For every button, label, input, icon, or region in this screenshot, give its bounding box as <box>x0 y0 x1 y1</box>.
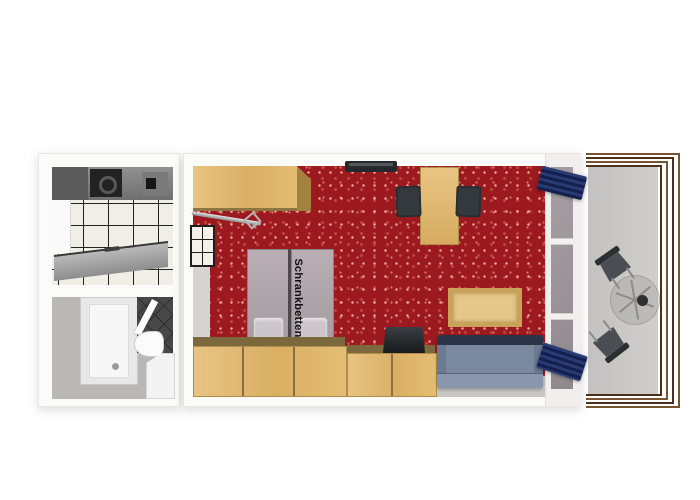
sofa-front <box>437 373 543 388</box>
floor-plan: Schrankbetten <box>0 0 700 500</box>
wardrobe <box>193 166 297 211</box>
bathroom <box>52 297 173 399</box>
sofa-arm-left <box>437 345 446 373</box>
table-hub-icon <box>637 295 648 306</box>
kitchen <box>52 167 173 285</box>
kitchen-counter-column <box>52 200 71 254</box>
drain-icon <box>112 363 119 370</box>
sofa <box>437 335 543 388</box>
sofa-back <box>437 335 543 345</box>
kitchen-bathroom-unit <box>38 153 180 407</box>
coffee-table <box>448 288 522 327</box>
shower-tray <box>89 304 129 378</box>
kitchen-sink-unit <box>142 172 168 196</box>
balcony-table <box>610 275 660 325</box>
balcony <box>586 153 680 408</box>
sink-basin-icon <box>146 178 156 189</box>
kitchen-upper-cabinets <box>52 167 173 200</box>
dining-table <box>420 167 459 245</box>
shower <box>80 297 138 385</box>
bed-label: Schrankbetten <box>291 250 305 346</box>
window-frame-bar <box>551 238 573 245</box>
kitchen-cabinet-dark <box>52 167 88 200</box>
dining-chair-left <box>395 186 421 218</box>
window-frame-bar <box>551 313 573 320</box>
washbasin-vanity <box>146 353 175 399</box>
wall-radiator <box>345 161 397 172</box>
entry-glazing <box>190 225 215 267</box>
living-room: Schrankbetten <box>183 153 581 407</box>
toilet <box>134 331 164 357</box>
cooktop-panel <box>90 169 122 197</box>
bed-bench-cabinet <box>193 346 347 397</box>
hob-ring-icon <box>99 176 117 194</box>
bed-bench-top <box>193 337 345 346</box>
dining-chair-right <box>455 186 481 218</box>
tv <box>383 327 425 353</box>
sideboard-cabinet <box>347 353 437 397</box>
